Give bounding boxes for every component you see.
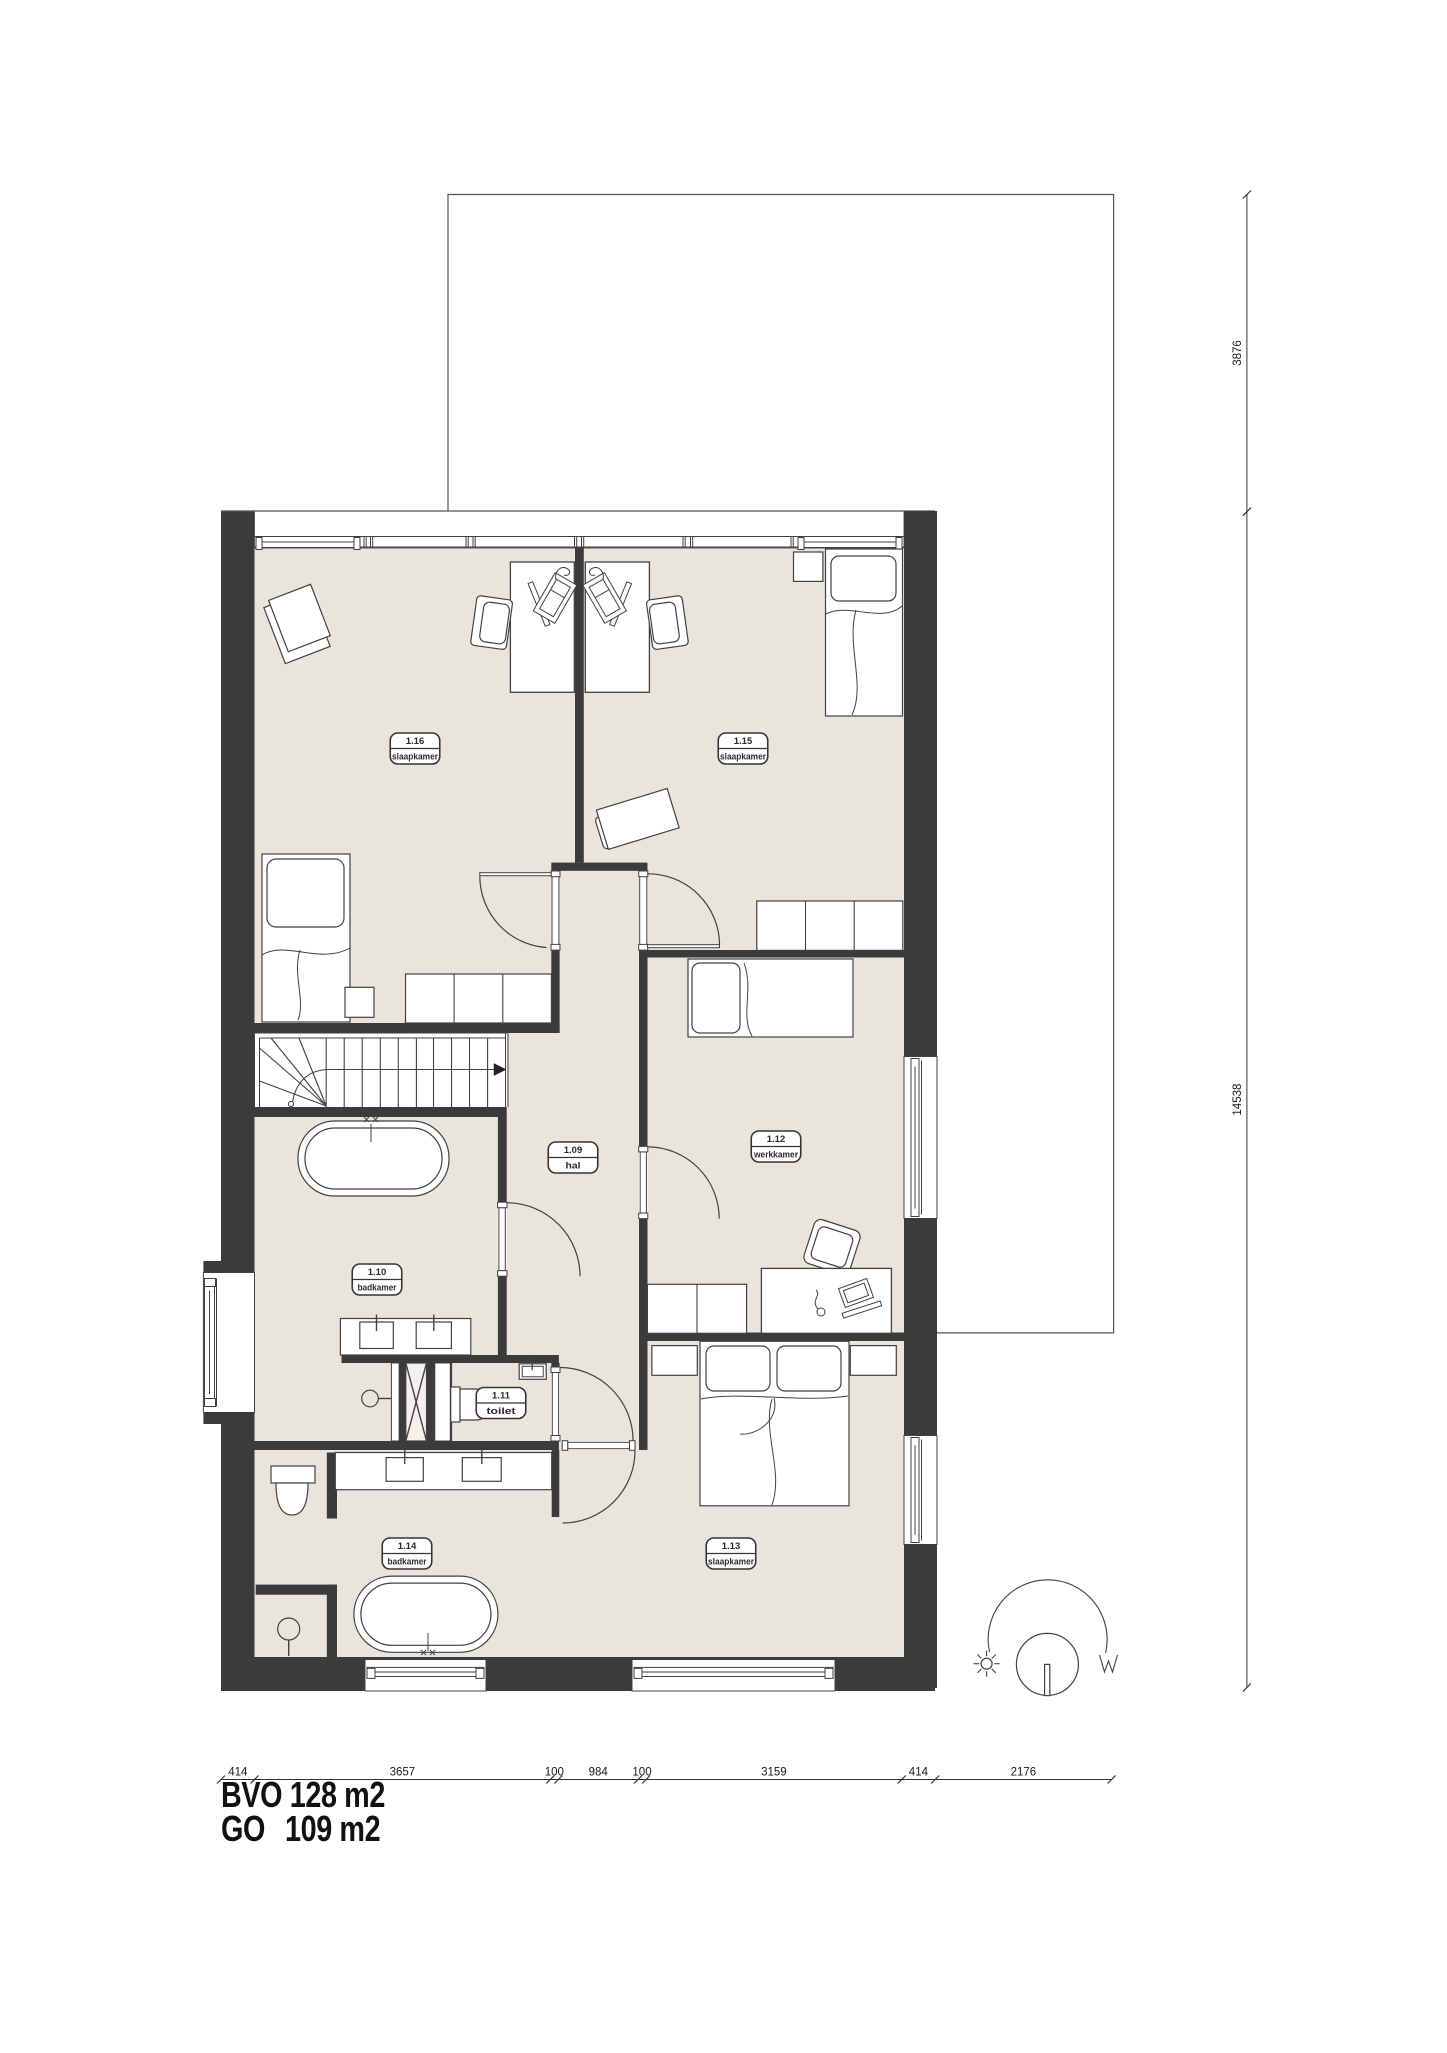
svg-text:2176: 2176 bbox=[1011, 1767, 1037, 1779]
svg-text:1.16: 1.16 bbox=[406, 736, 425, 747]
svg-text:1.09: 1.09 bbox=[564, 1145, 583, 1156]
svg-text:1.11: 1.11 bbox=[492, 1390, 511, 1401]
svg-text:984: 984 bbox=[589, 1767, 609, 1779]
svg-text:slaapkamer: slaapkamer bbox=[708, 1556, 754, 1567]
svg-text:109 m2: 109 m2 bbox=[285, 1808, 380, 1849]
svg-text:3657: 3657 bbox=[390, 1767, 416, 1779]
svg-text:3159: 3159 bbox=[761, 1767, 787, 1779]
svg-text:100: 100 bbox=[632, 1767, 651, 1779]
svg-text:badkamer: badkamer bbox=[388, 1556, 427, 1567]
svg-text:1.13: 1.13 bbox=[722, 1541, 741, 1552]
svg-text:slaapkamer: slaapkamer bbox=[720, 751, 766, 762]
svg-text:werkkamer: werkkamer bbox=[753, 1149, 798, 1160]
svg-text:toilet: toilet bbox=[487, 1406, 517, 1417]
svg-text:3876: 3876 bbox=[1232, 340, 1244, 366]
svg-text:badkamer: badkamer bbox=[358, 1282, 397, 1293]
svg-text:1.12: 1.12 bbox=[767, 1134, 786, 1145]
svg-text:1.15: 1.15 bbox=[734, 736, 753, 747]
svg-text:1.10: 1.10 bbox=[368, 1267, 387, 1278]
svg-text:hal: hal bbox=[566, 1160, 581, 1171]
svg-text:100: 100 bbox=[545, 1767, 564, 1779]
svg-text:1.14: 1.14 bbox=[398, 1541, 417, 1552]
svg-text:414: 414 bbox=[909, 1767, 929, 1779]
svg-text:GO: GO bbox=[221, 1808, 265, 1849]
svg-text:14538: 14538 bbox=[1232, 1084, 1244, 1116]
svg-text:slaapkamer: slaapkamer bbox=[392, 751, 438, 762]
